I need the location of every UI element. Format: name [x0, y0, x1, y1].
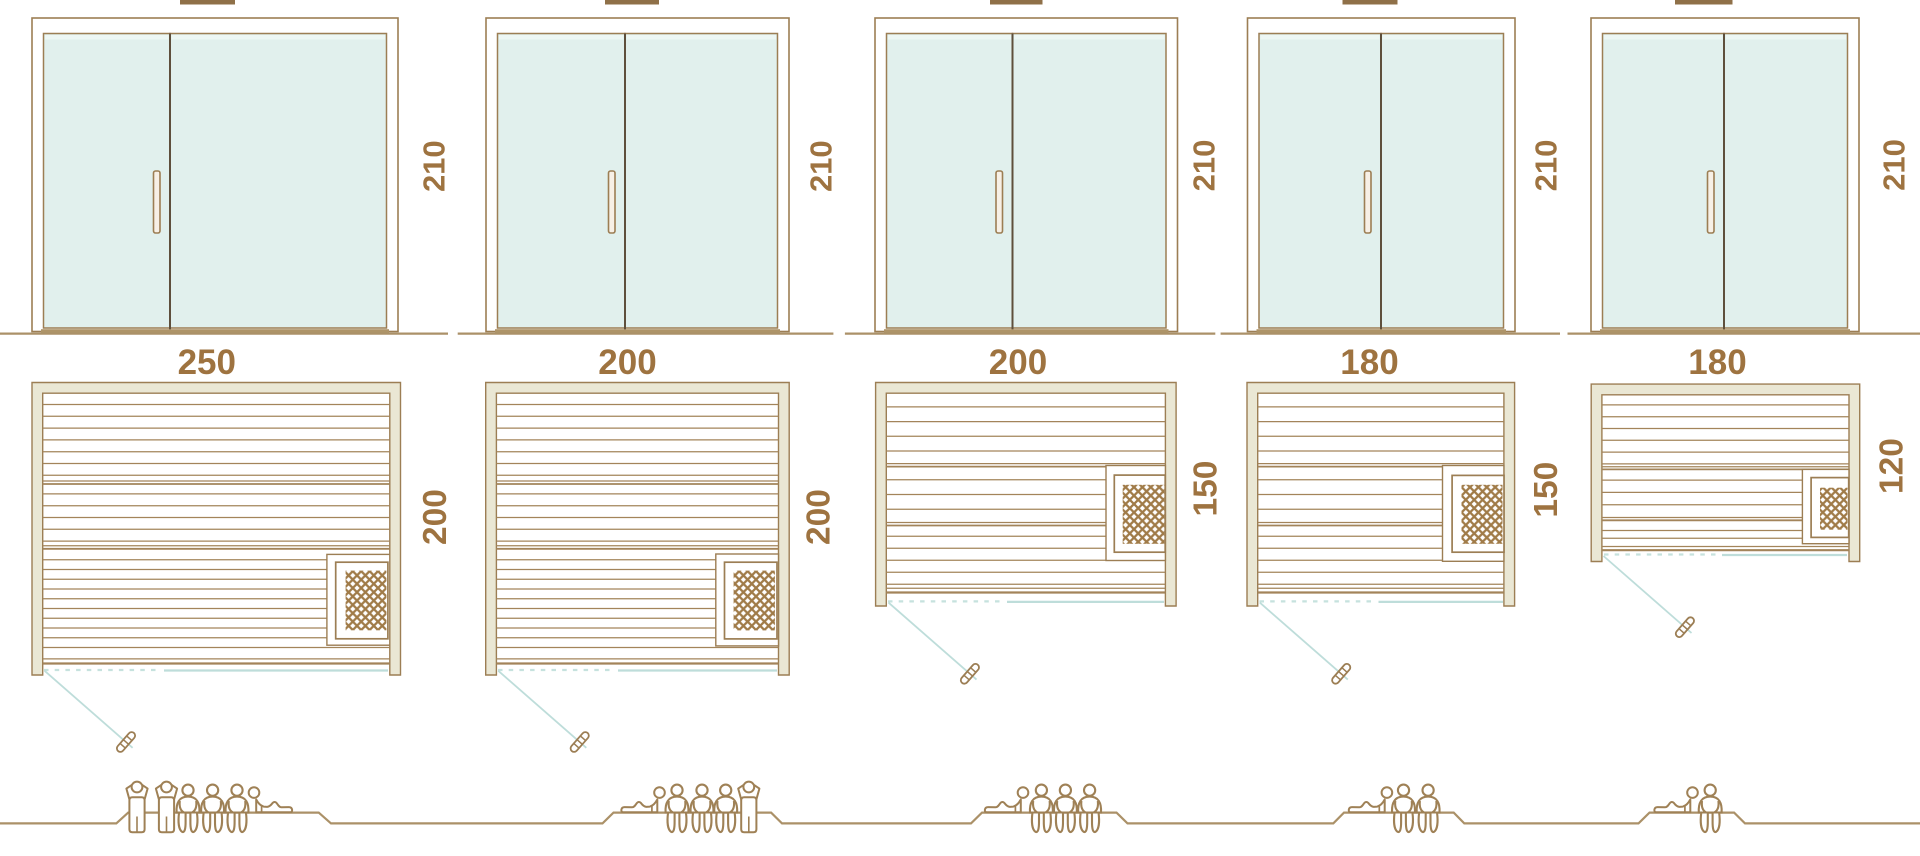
svg-text:200: 200 — [417, 489, 454, 545]
svg-text:200: 200 — [989, 343, 1047, 382]
svg-text:210: 210 — [804, 140, 839, 192]
svg-text:210: 210 — [1528, 140, 1563, 192]
svg-text:250: 250 — [178, 343, 236, 382]
svg-text:210: 210 — [1186, 140, 1221, 192]
svg-text:210: 210 — [416, 140, 451, 192]
svg-text:150: 150 — [1528, 462, 1565, 518]
svg-text:200: 200 — [598, 343, 656, 382]
svg-text:180: 180 — [1340, 343, 1398, 382]
svg-text:210: 210 — [1876, 139, 1911, 191]
svg-text:200: 200 — [800, 489, 837, 545]
svg-text:180: 180 — [1688, 343, 1746, 382]
svg-text:150: 150 — [1188, 461, 1225, 517]
svg-text:120: 120 — [1874, 438, 1911, 494]
